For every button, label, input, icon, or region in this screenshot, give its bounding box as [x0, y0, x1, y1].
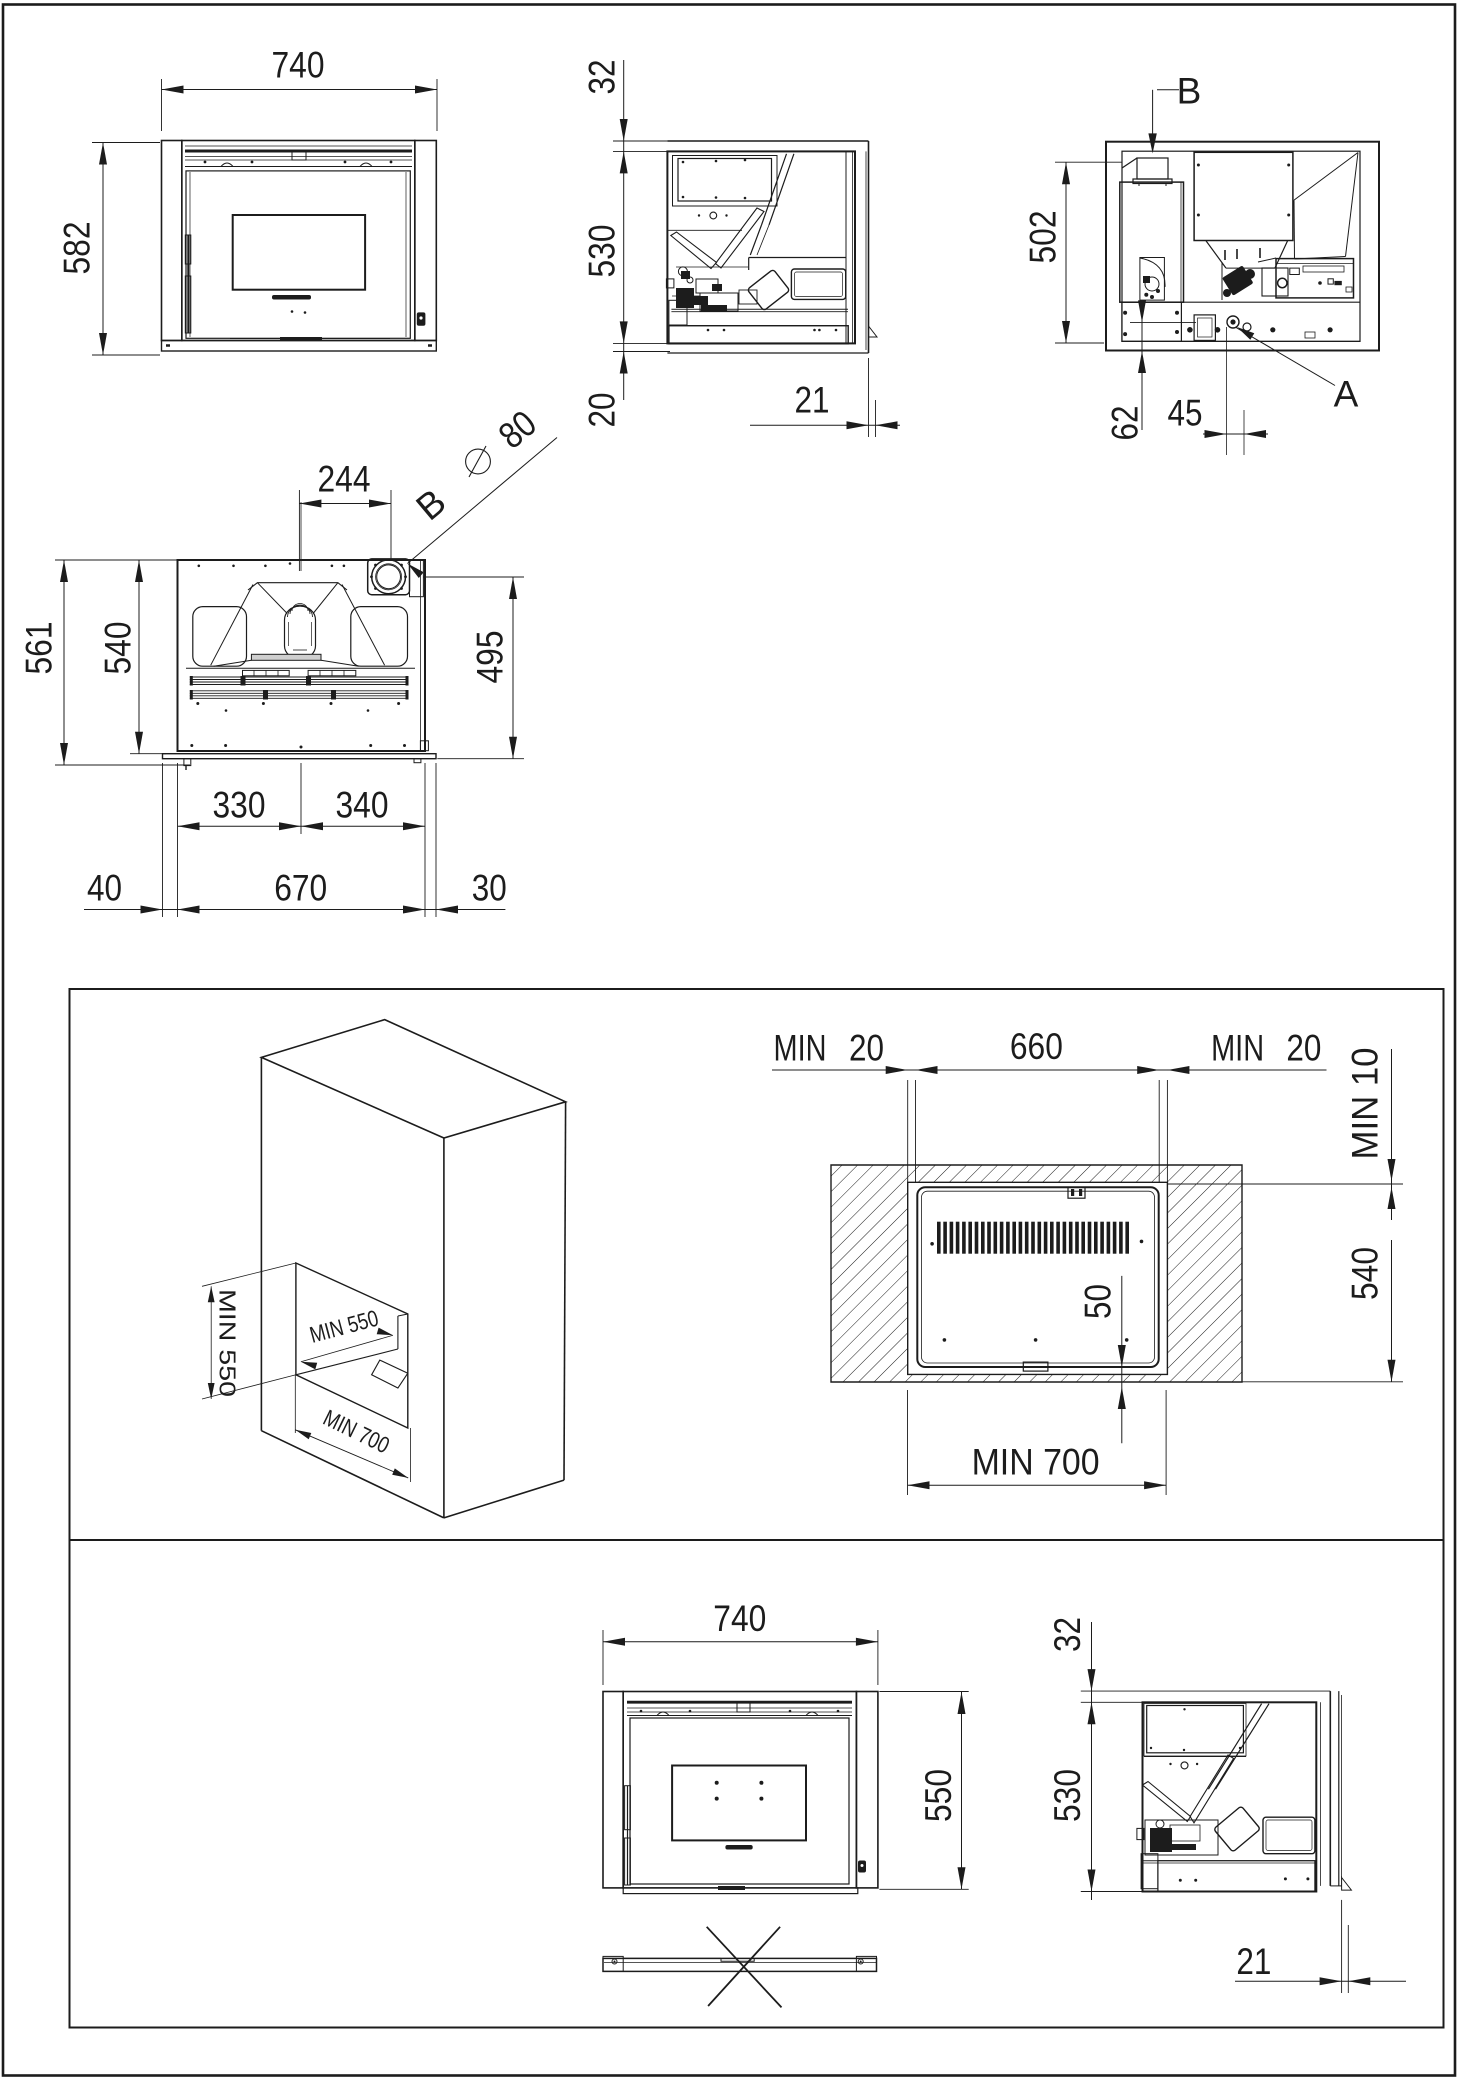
- svg-text:MIN 550: MIN 550: [215, 1289, 241, 1397]
- svg-text:540: 540: [1344, 1247, 1385, 1300]
- svg-text:582: 582: [56, 222, 97, 275]
- svg-text:550: 550: [918, 1769, 959, 1822]
- svg-text:MIN: MIN: [774, 1027, 827, 1068]
- svg-text:A: A: [1334, 373, 1359, 414]
- svg-text:740: 740: [272, 44, 325, 85]
- svg-text:20: 20: [1286, 1027, 1321, 1068]
- svg-text:MIN 10: MIN 10: [1344, 1048, 1385, 1160]
- svg-text:670: 670: [274, 867, 327, 908]
- svg-text:62: 62: [1104, 406, 1145, 441]
- svg-text:45: 45: [1168, 392, 1203, 433]
- svg-text:B: B: [1177, 70, 1202, 111]
- svg-text:330: 330: [213, 784, 266, 825]
- svg-text:MIN: MIN: [1211, 1027, 1264, 1068]
- svg-text:561: 561: [18, 622, 59, 675]
- svg-text:50: 50: [1077, 1284, 1118, 1319]
- svg-text:740: 740: [713, 1598, 766, 1639]
- svg-text:530: 530: [581, 225, 622, 278]
- svg-text:20: 20: [849, 1027, 884, 1068]
- svg-text:340: 340: [336, 784, 389, 825]
- svg-text:40: 40: [87, 867, 122, 908]
- svg-text:244: 244: [318, 458, 371, 499]
- svg-text:660: 660: [1010, 1026, 1063, 1067]
- svg-text:495: 495: [469, 631, 510, 684]
- svg-text:20: 20: [581, 393, 622, 428]
- svg-text:21: 21: [1236, 1941, 1271, 1982]
- svg-text:30: 30: [472, 867, 507, 908]
- svg-text:502: 502: [1022, 211, 1063, 264]
- svg-text:21: 21: [795, 379, 830, 420]
- svg-text:540: 540: [97, 622, 138, 675]
- svg-text:32: 32: [1047, 1617, 1088, 1652]
- svg-text:32: 32: [581, 60, 622, 95]
- svg-text:MIN 700: MIN 700: [972, 1441, 1100, 1482]
- svg-text:530: 530: [1047, 1769, 1088, 1822]
